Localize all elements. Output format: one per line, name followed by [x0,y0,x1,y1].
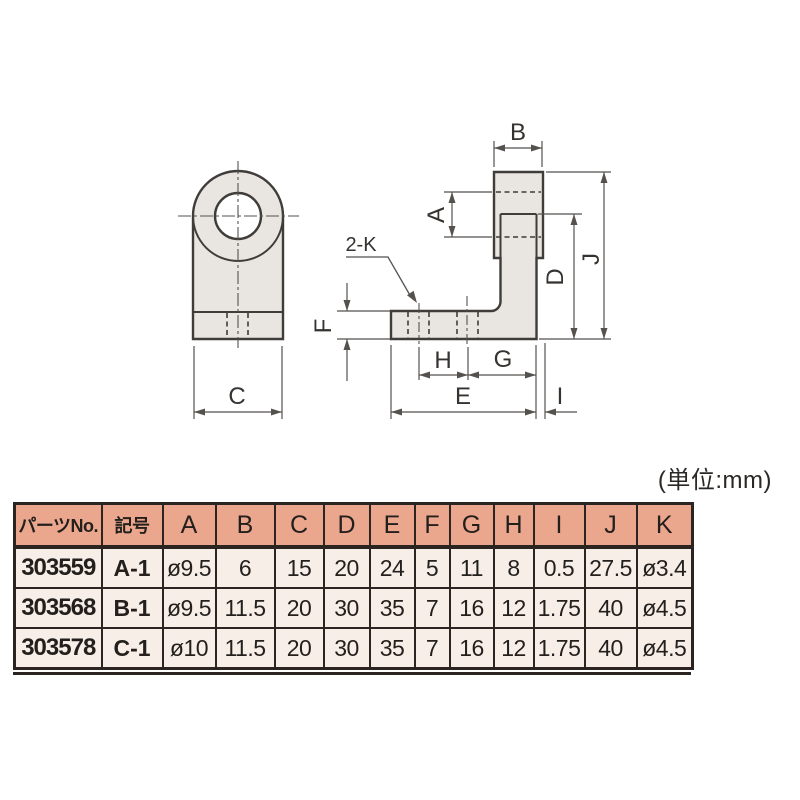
col-header-e: E [370,504,415,548]
col-header-symbol: 記号 [102,504,163,548]
symbol: C-1 [102,628,163,669]
col-header-b: B [216,504,275,548]
hole-callout-leader [346,257,417,303]
part-no: 303578 [15,628,102,669]
unit-note: (単位:mm) [520,460,772,495]
table-row: 303559 A-1 ø9.5 6 15 20 24 5 11 8 0.5 27… [15,547,693,588]
symbol: A-1 [102,547,163,588]
col-header-part-no: パーツNo. [15,504,102,548]
dim-label-a: A [423,207,450,223]
dim-label-d: D [542,268,569,285]
technical-drawing: C B [0,0,800,460]
col-header-g: G [450,504,494,548]
header-row: パーツNo. 記号 A B C D E F G H I J K [15,504,693,548]
col-header-j: J [585,504,637,548]
dim-label-i: I [557,383,564,410]
dim-label-b: B [510,119,526,146]
col-header-a: A [163,504,216,548]
dim-label-g: G [494,346,513,373]
dim-label-c: C [228,383,245,410]
spec-table: パーツNo. 記号 A B C D E F G H I J K 303559 A… [13,502,694,670]
symbol: B-1 [102,588,163,628]
col-header-f: F [415,504,450,548]
spec-table-wrap: パーツNo. 記号 A B C D E F G H I J K 303559 A… [13,502,691,675]
catalog-page: { "unit_note": "(単位:mm)", "drawing": { "… [0,0,800,800]
col-header-h: H [494,504,534,548]
side-view-outline [391,172,543,339]
col-header-k: K [637,504,693,548]
table-row: 303578 C-1 ø10 11.5 20 30 35 7 16 12 1.7… [15,628,693,669]
col-header-d: D [324,504,370,548]
dim-label-h: H [434,347,451,374]
table-row: 303568 B-1 ø9.5 11.5 20 30 35 7 16 12 1.… [15,588,693,628]
hole-callout-label: 2-K [345,234,377,256]
side-view [391,172,543,344]
table-bottom-rule [13,672,691,675]
part-no: 303559 [15,547,102,588]
dim-a [444,192,492,237]
part-no: 303568 [15,588,102,628]
dim-label-e: E [455,383,471,410]
col-header-c: C [275,504,324,548]
dim-label-f: F [310,319,337,334]
front-view [178,161,299,348]
col-header-i: I [534,504,585,548]
dim-f [337,283,390,381]
dim-label-j: J [578,253,605,265]
